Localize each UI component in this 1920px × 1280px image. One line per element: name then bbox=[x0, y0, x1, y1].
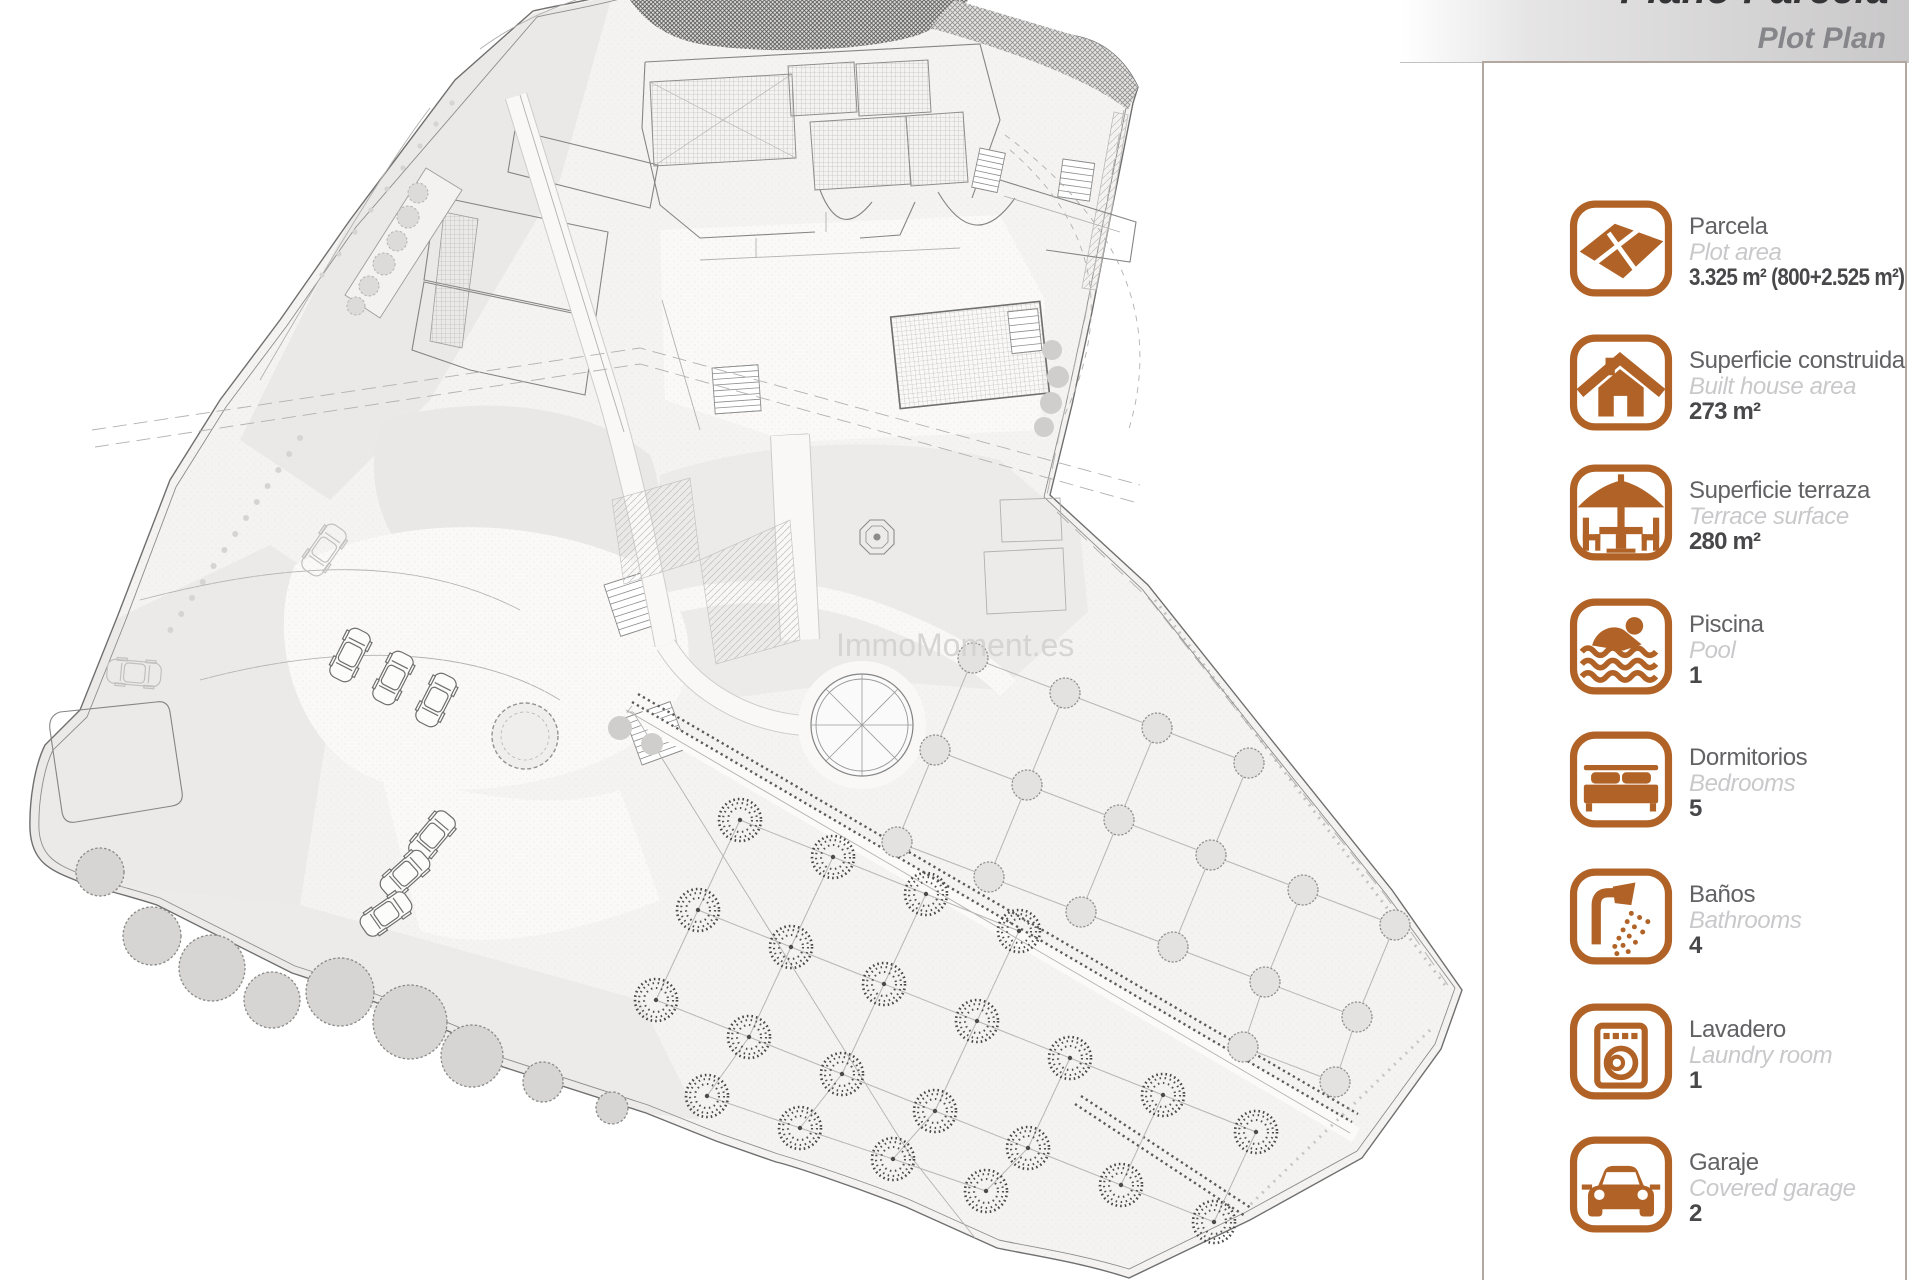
svg-text:ImmoMoment.es: ImmoMoment.es bbox=[836, 627, 1074, 663]
